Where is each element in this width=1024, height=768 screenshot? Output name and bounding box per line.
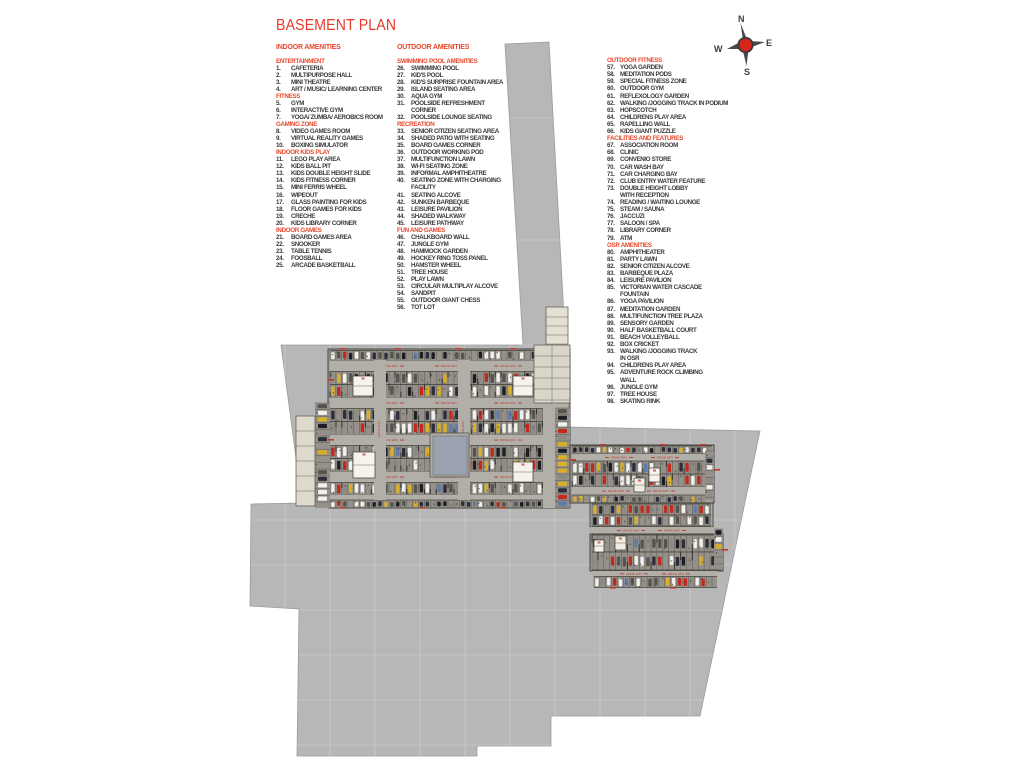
svg-text:DRIVE WAY: DRIVE WAY	[500, 401, 517, 405]
svg-text:DRIVE WAY: DRIVE WAY	[461, 421, 465, 438]
svg-text:DRIVE WAY: DRIVE WAY	[441, 364, 458, 368]
svg-text:DRIVE WAY: DRIVE WAY	[623, 529, 640, 533]
svg-text:N: N	[738, 14, 745, 24]
svg-text:DRIVE WAY: DRIVE WAY	[626, 572, 643, 576]
svg-text:DRIVE WAY: DRIVE WAY	[653, 489, 670, 493]
svg-text:DRIVE WAY: DRIVE WAY	[382, 364, 399, 368]
svg-text:DRIVE WAY: DRIVE WAY	[664, 529, 681, 533]
svg-text:W: W	[714, 44, 723, 54]
svg-text:DRIVE WAY: DRIVE WAY	[441, 475, 458, 479]
svg-text:DRIVE WAY: DRIVE WAY	[611, 456, 628, 460]
svg-text:DRIVE WAY: DRIVE WAY	[657, 456, 674, 460]
svg-text:DRIVE WAY: DRIVE WAY	[500, 475, 517, 479]
svg-text:DRIVE WAY: DRIVE WAY	[441, 401, 458, 405]
svg-text:DRIVE WAY: DRIVE WAY	[608, 489, 625, 493]
svg-text:DRIVE WAY: DRIVE WAY	[382, 401, 399, 405]
svg-text:DRIVE WAY: DRIVE WAY	[377, 421, 381, 438]
svg-text:S: S	[744, 67, 750, 77]
svg-text:DRIVE WAY: DRIVE WAY	[382, 438, 399, 442]
svg-text:DRIVE WAY: DRIVE WAY	[382, 475, 399, 479]
svg-text:DRIVE WAY: DRIVE WAY	[668, 572, 685, 576]
svg-text:DRIVE WAY: DRIVE WAY	[441, 438, 458, 442]
svg-text:DRIVE WAY: DRIVE WAY	[500, 364, 517, 368]
svg-text:DRIVE WAY: DRIVE WAY	[500, 438, 517, 442]
svg-text:E: E	[766, 38, 772, 48]
